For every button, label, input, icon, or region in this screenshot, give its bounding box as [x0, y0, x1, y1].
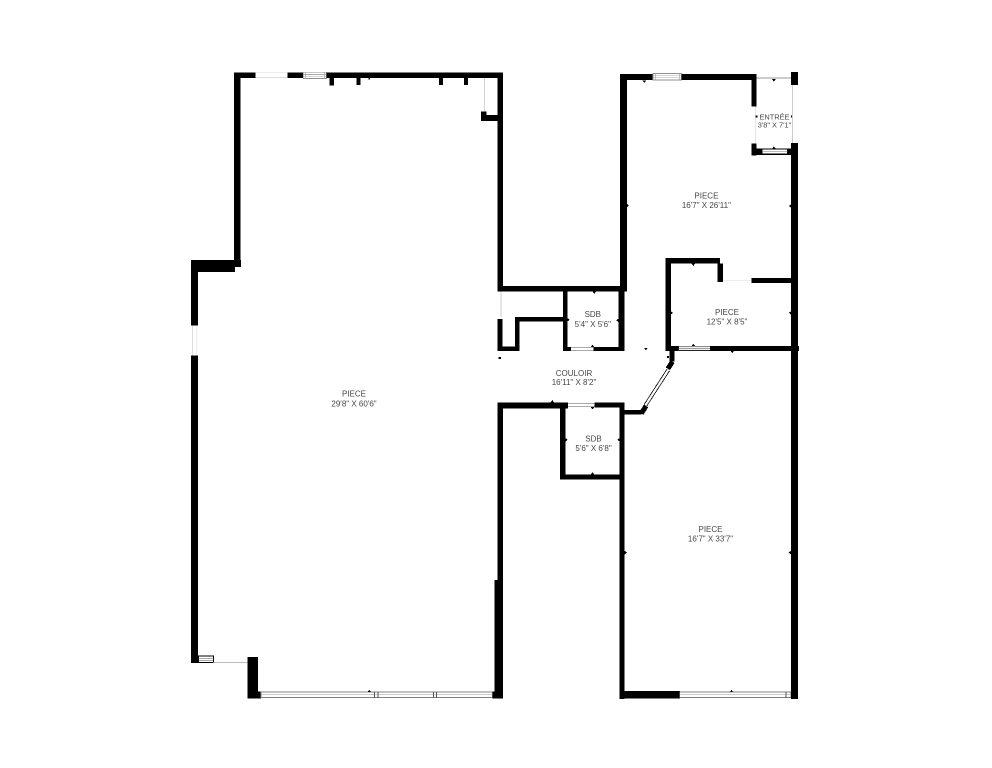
svg-text:5'4" X 5'6": 5'4" X 5'6" [575, 320, 611, 329]
svg-text:PIECE: PIECE [698, 525, 722, 534]
svg-text:SDB: SDB [585, 434, 601, 443]
svg-text:16'11" X 8'2": 16'11" X 8'2" [552, 378, 597, 387]
svg-text:PIECE: PIECE [694, 192, 718, 201]
svg-text:16'7" X 33'7": 16'7" X 33'7" [688, 535, 733, 544]
svg-text:PIECE: PIECE [715, 308, 739, 317]
svg-text:12'5" X 8'5": 12'5" X 8'5" [707, 318, 748, 327]
svg-text:PIECE: PIECE [342, 390, 366, 399]
svg-text:COULOIR: COULOIR [556, 369, 593, 378]
svg-text:29'8" X 60'6": 29'8" X 60'6" [331, 400, 376, 409]
svg-text:3'8" X 7'1": 3'8" X 7'1" [758, 121, 792, 130]
svg-text:SDB: SDB [585, 310, 601, 319]
svg-text:5'6" X 6'8": 5'6" X 6'8" [575, 444, 611, 453]
svg-text:16'7" X 26'11": 16'7" X 26'11" [682, 201, 731, 210]
